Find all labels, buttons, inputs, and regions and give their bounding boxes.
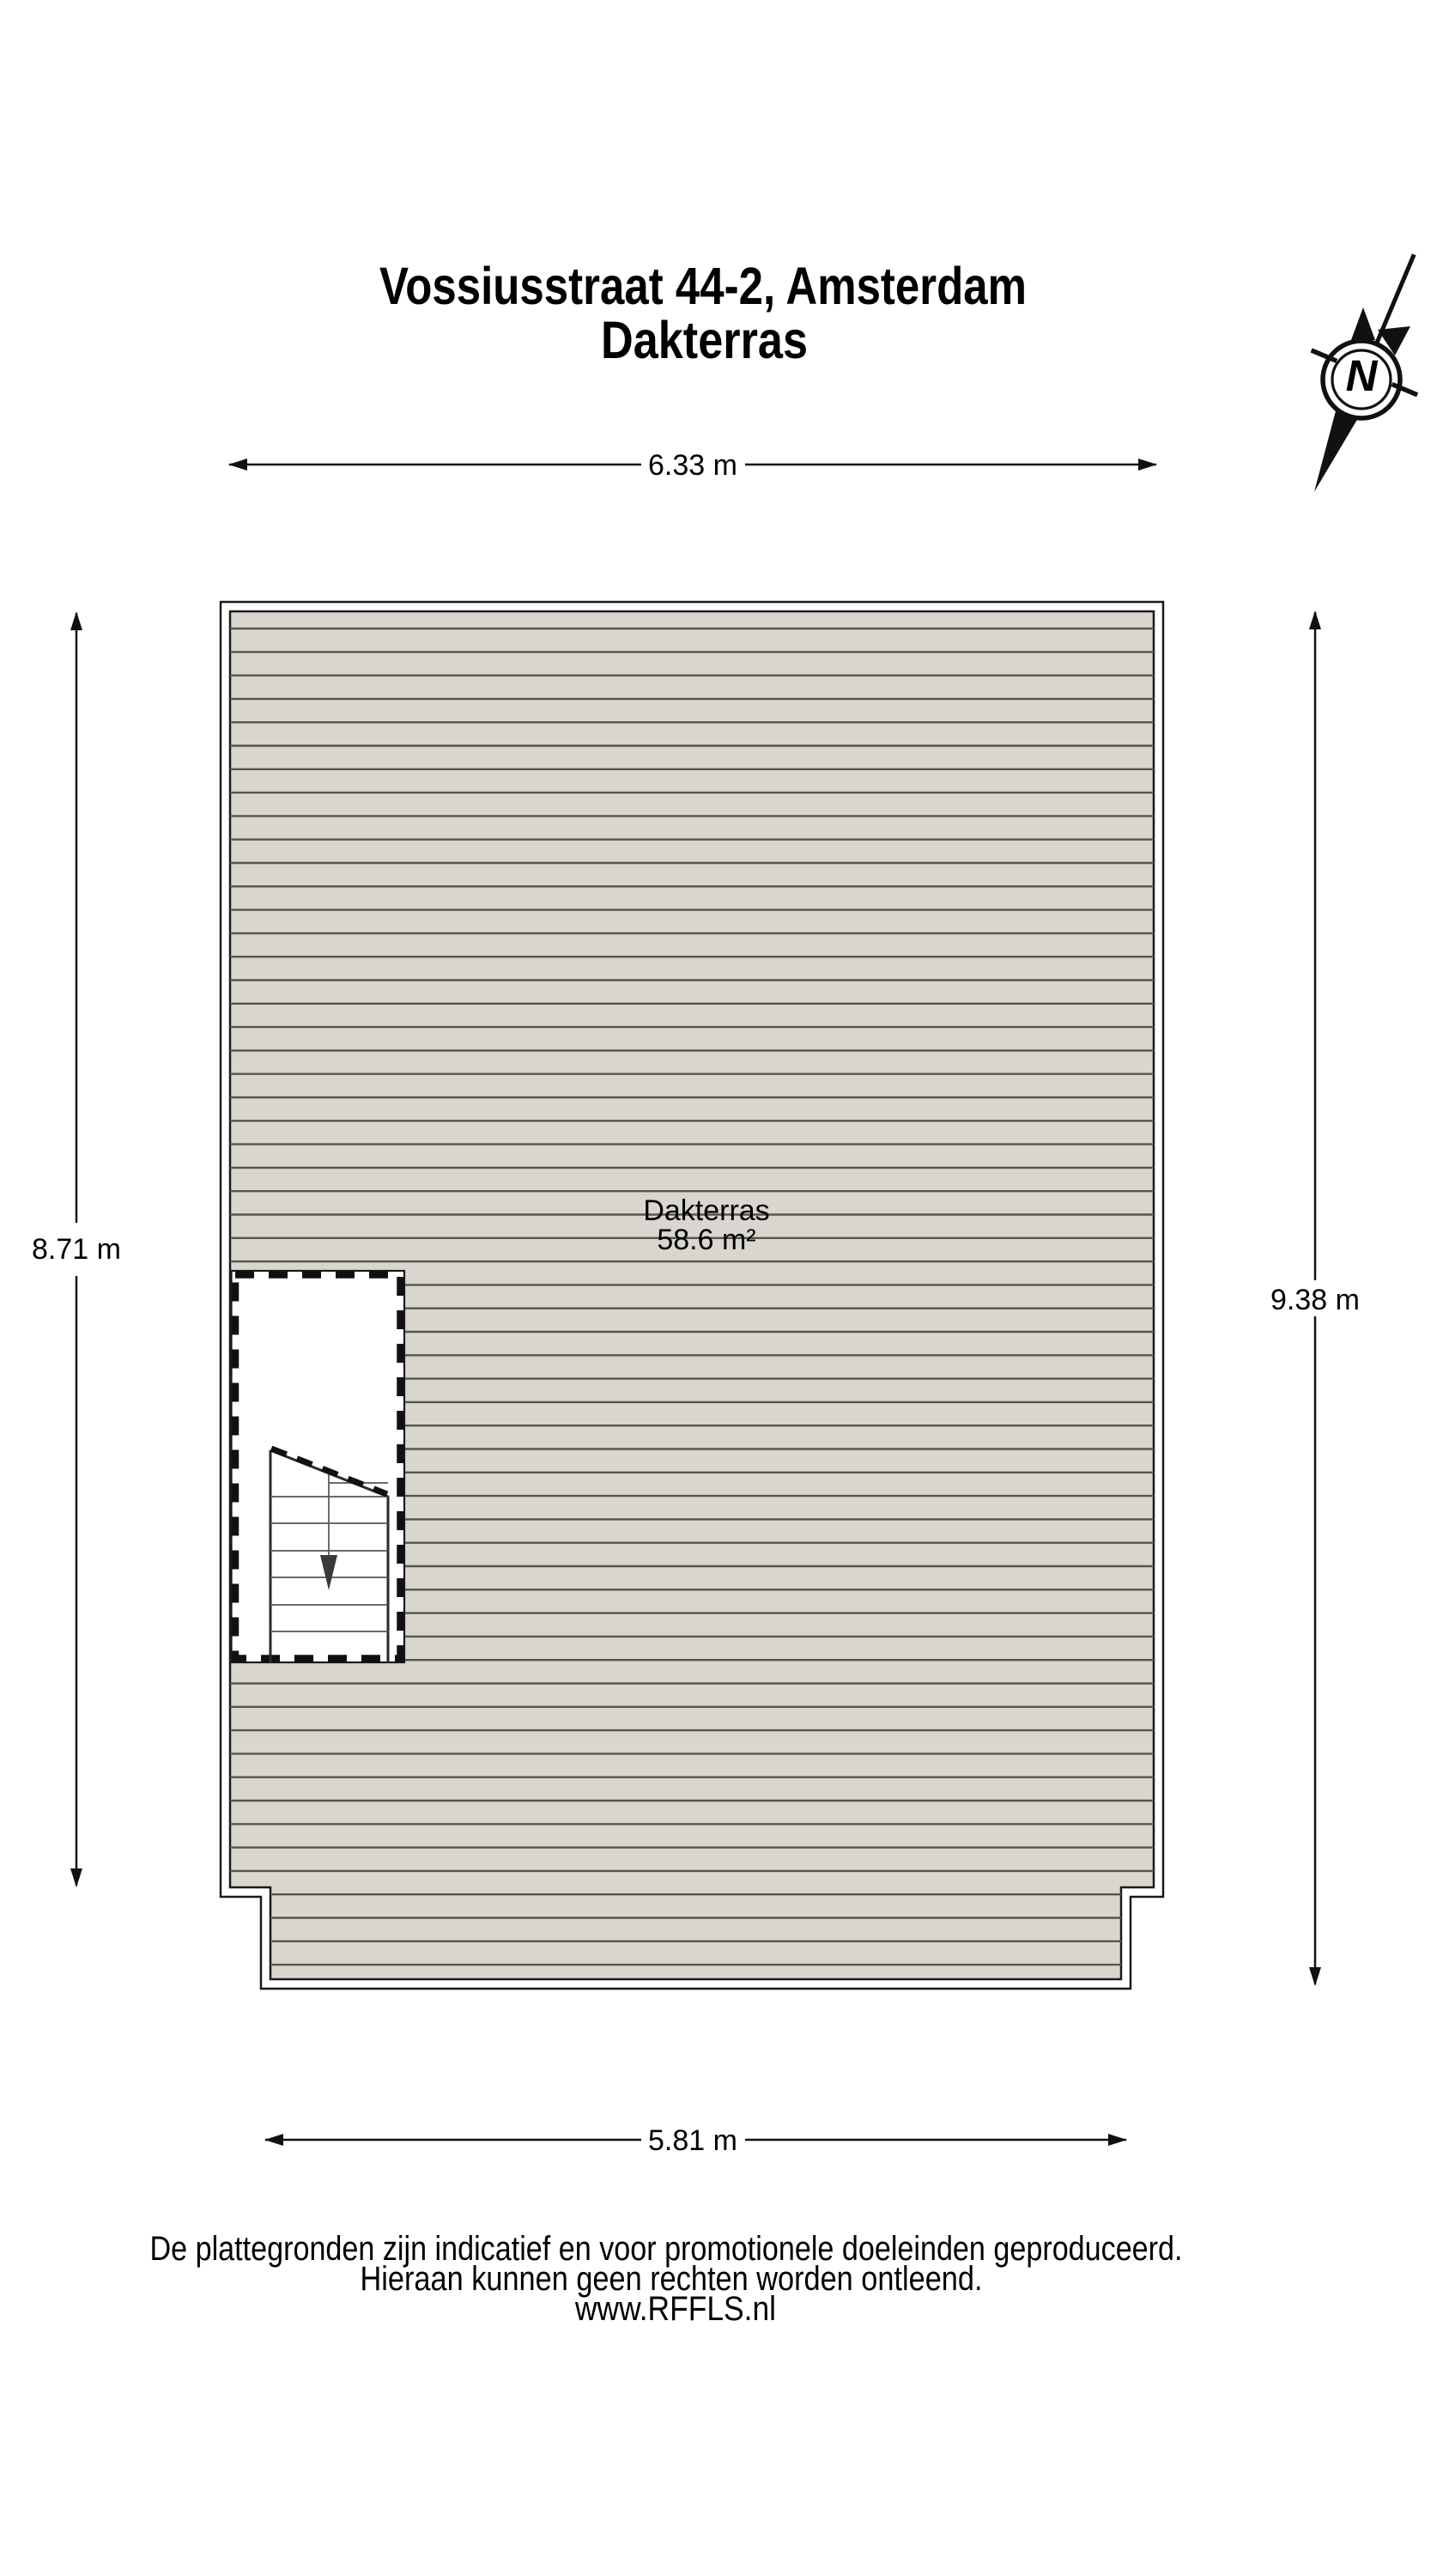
- svg-text:Dakterras: Dakterras: [601, 311, 808, 369]
- svg-text:N: N: [1346, 351, 1379, 400]
- svg-text:Vossiusstraat 44-2, Amsterdam: Vossiusstraat 44-2, Amsterdam: [379, 257, 1027, 315]
- svg-text:5.81 m: 5.81 m: [648, 2124, 737, 2157]
- svg-text:58.6 m²: 58.6 m²: [657, 1224, 755, 1256]
- svg-text:8.71 m: 8.71 m: [32, 1233, 121, 1266]
- svg-text:Dakterras: Dakterras: [643, 1194, 769, 1227]
- svg-text:6.33 m: 6.33 m: [648, 449, 737, 482]
- svg-text:9.38 m: 9.38 m: [1270, 1284, 1360, 1316]
- svg-text:www.RFFLS.nl: www.RFFLS.nl: [574, 2290, 776, 2328]
